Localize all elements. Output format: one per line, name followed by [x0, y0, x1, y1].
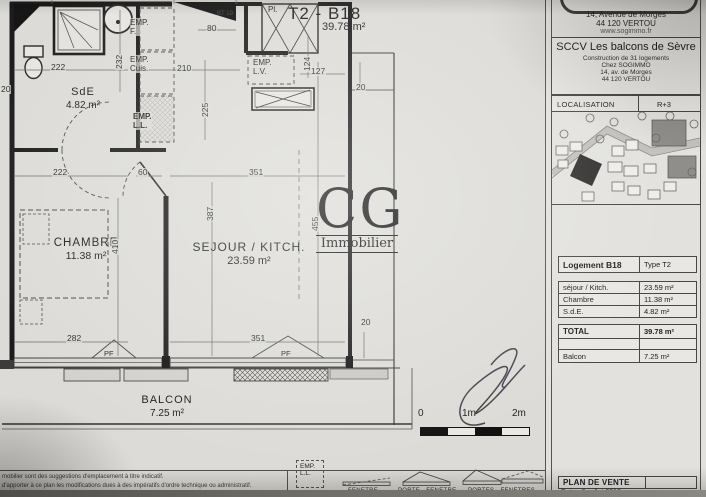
- table-row-label: Chambre: [559, 295, 639, 304]
- table-balcon-row: Balcon 7.25 m²: [558, 349, 697, 363]
- agency-website: www.sogimmo.fr: [552, 28, 700, 35]
- room-area: 4.82 m²: [53, 100, 113, 113]
- project-line3: 14, av. de Morges: [552, 69, 700, 76]
- fenetre-symbol-icon: [342, 474, 392, 487]
- project-line1: Construction de 31 logements: [552, 55, 700, 62]
- annotation-placard: Pl.: [268, 5, 277, 14]
- watermark-initials: CG: [316, 183, 398, 234]
- plan-title-area: 39.78 m²: [322, 21, 365, 33]
- table-row-value: 4.82 m²: [639, 306, 696, 317]
- room-name: SEJOUR / KITCH.: [183, 240, 315, 255]
- room-label-sde: SdE 4.82 m²: [53, 86, 113, 112]
- room-area: 23.59 m²: [183, 255, 315, 269]
- project-box: SCCV Les balcons de Sèvre Construction d…: [551, 37, 701, 95]
- table-row-value: 11.38 m²: [639, 294, 696, 305]
- annotation-pf-2: PF: [281, 350, 291, 359]
- room-area: 11.38 m²: [40, 250, 132, 263]
- annotation-pf-1: PF: [104, 350, 114, 359]
- room-label-balcon: BALCON 7.25 m²: [122, 394, 212, 420]
- table-total-label: TOTAL: [559, 327, 639, 336]
- legend-divider: [287, 471, 288, 492]
- annotation-emp-cuisine: EMP. Cuis.: [130, 55, 149, 73]
- localisation-label: LOCALISATION: [552, 96, 638, 111]
- portes-fenetres-symbol-icon: [462, 468, 544, 487]
- table-row-label: séjour / Kitch.: [559, 283, 639, 292]
- paper-sheet: T2 - B18 39.78 m² SdE 4.82 m² CHAMBRE 11…: [0, 0, 706, 492]
- watermark-name: Immobilier: [316, 235, 398, 253]
- localisation-map: [551, 111, 701, 205]
- footer-doc-row: PLAN DE VENTE: [558, 476, 697, 489]
- photo-background-edge: [0, 490, 706, 497]
- scanned-floor-plan-page: T2 - B18 39.78 m² SdE 4.82 m² CHAMBRE 11…: [0, 0, 706, 497]
- table-header-row: Logement B18 Type T2: [558, 256, 697, 273]
- room-name: SdE: [53, 86, 113, 100]
- room-name: CHAMBRE: [40, 236, 132, 250]
- signature-scribble-graphic: [425, 335, 550, 435]
- porte-fenetre-symbol-icon: [402, 470, 452, 487]
- table-row: S.d.E. 4.82 m²: [558, 305, 697, 318]
- annotation-emp-lave-linge: EMP. L.L.: [133, 112, 152, 130]
- site-map-graphic: [552, 112, 700, 204]
- annotation-emp-frigo: EMP. F.: [130, 18, 149, 36]
- annotation-door-tag: BT 19: [217, 11, 233, 18]
- room-label-sejour: SEJOUR / KITCH. 23.59 m²: [183, 240, 315, 269]
- table-total-row: TOTAL 39.78 m²: [558, 324, 697, 339]
- annotation-emp-lave-vaisselle: EMP. L.V.: [253, 58, 272, 76]
- agency-address: 14, Avenue de Morges 44 120 VERTOU www.s…: [552, 10, 700, 35]
- table-row-value: 23.59 m²: [639, 282, 696, 293]
- localisation-level: R+3: [638, 96, 700, 111]
- table-balcon-label: Balcon: [559, 352, 639, 361]
- room-label-chambre: CHAMBRE 11.38 m²: [40, 236, 132, 264]
- scale-label-0: 0: [418, 408, 424, 419]
- table-total-value: 39.78 m²: [639, 325, 696, 338]
- table-row-label: S.d.E.: [559, 307, 639, 316]
- project-line2: Chez SOGIMMO: [552, 62, 700, 69]
- room-name: BALCON: [122, 394, 212, 408]
- room-area: 7.25 m²: [122, 408, 212, 421]
- table-balcon-value: 7.25 m²: [639, 350, 696, 362]
- table-type-label: Type T2: [639, 257, 696, 272]
- column-border-left: [545, 0, 546, 492]
- localisation-header: LOCALISATION R+3: [551, 95, 701, 112]
- project-line4: 44 120 VERTOU: [552, 76, 700, 83]
- footer-doc-title: PLAN DE VENTE: [559, 478, 645, 487]
- agency-address-line2: 44 120 VERTOU: [552, 19, 700, 28]
- table-unit-label: Logement B18: [559, 260, 639, 270]
- legend-emp-box: EMP. L.L.: [296, 460, 324, 488]
- agency-watermark: CG Immobilier: [316, 183, 398, 253]
- agency-address-line1: 14, Avenue de Morges: [552, 10, 700, 19]
- project-name: SCCV Les balcons de Sèvre: [552, 41, 700, 53]
